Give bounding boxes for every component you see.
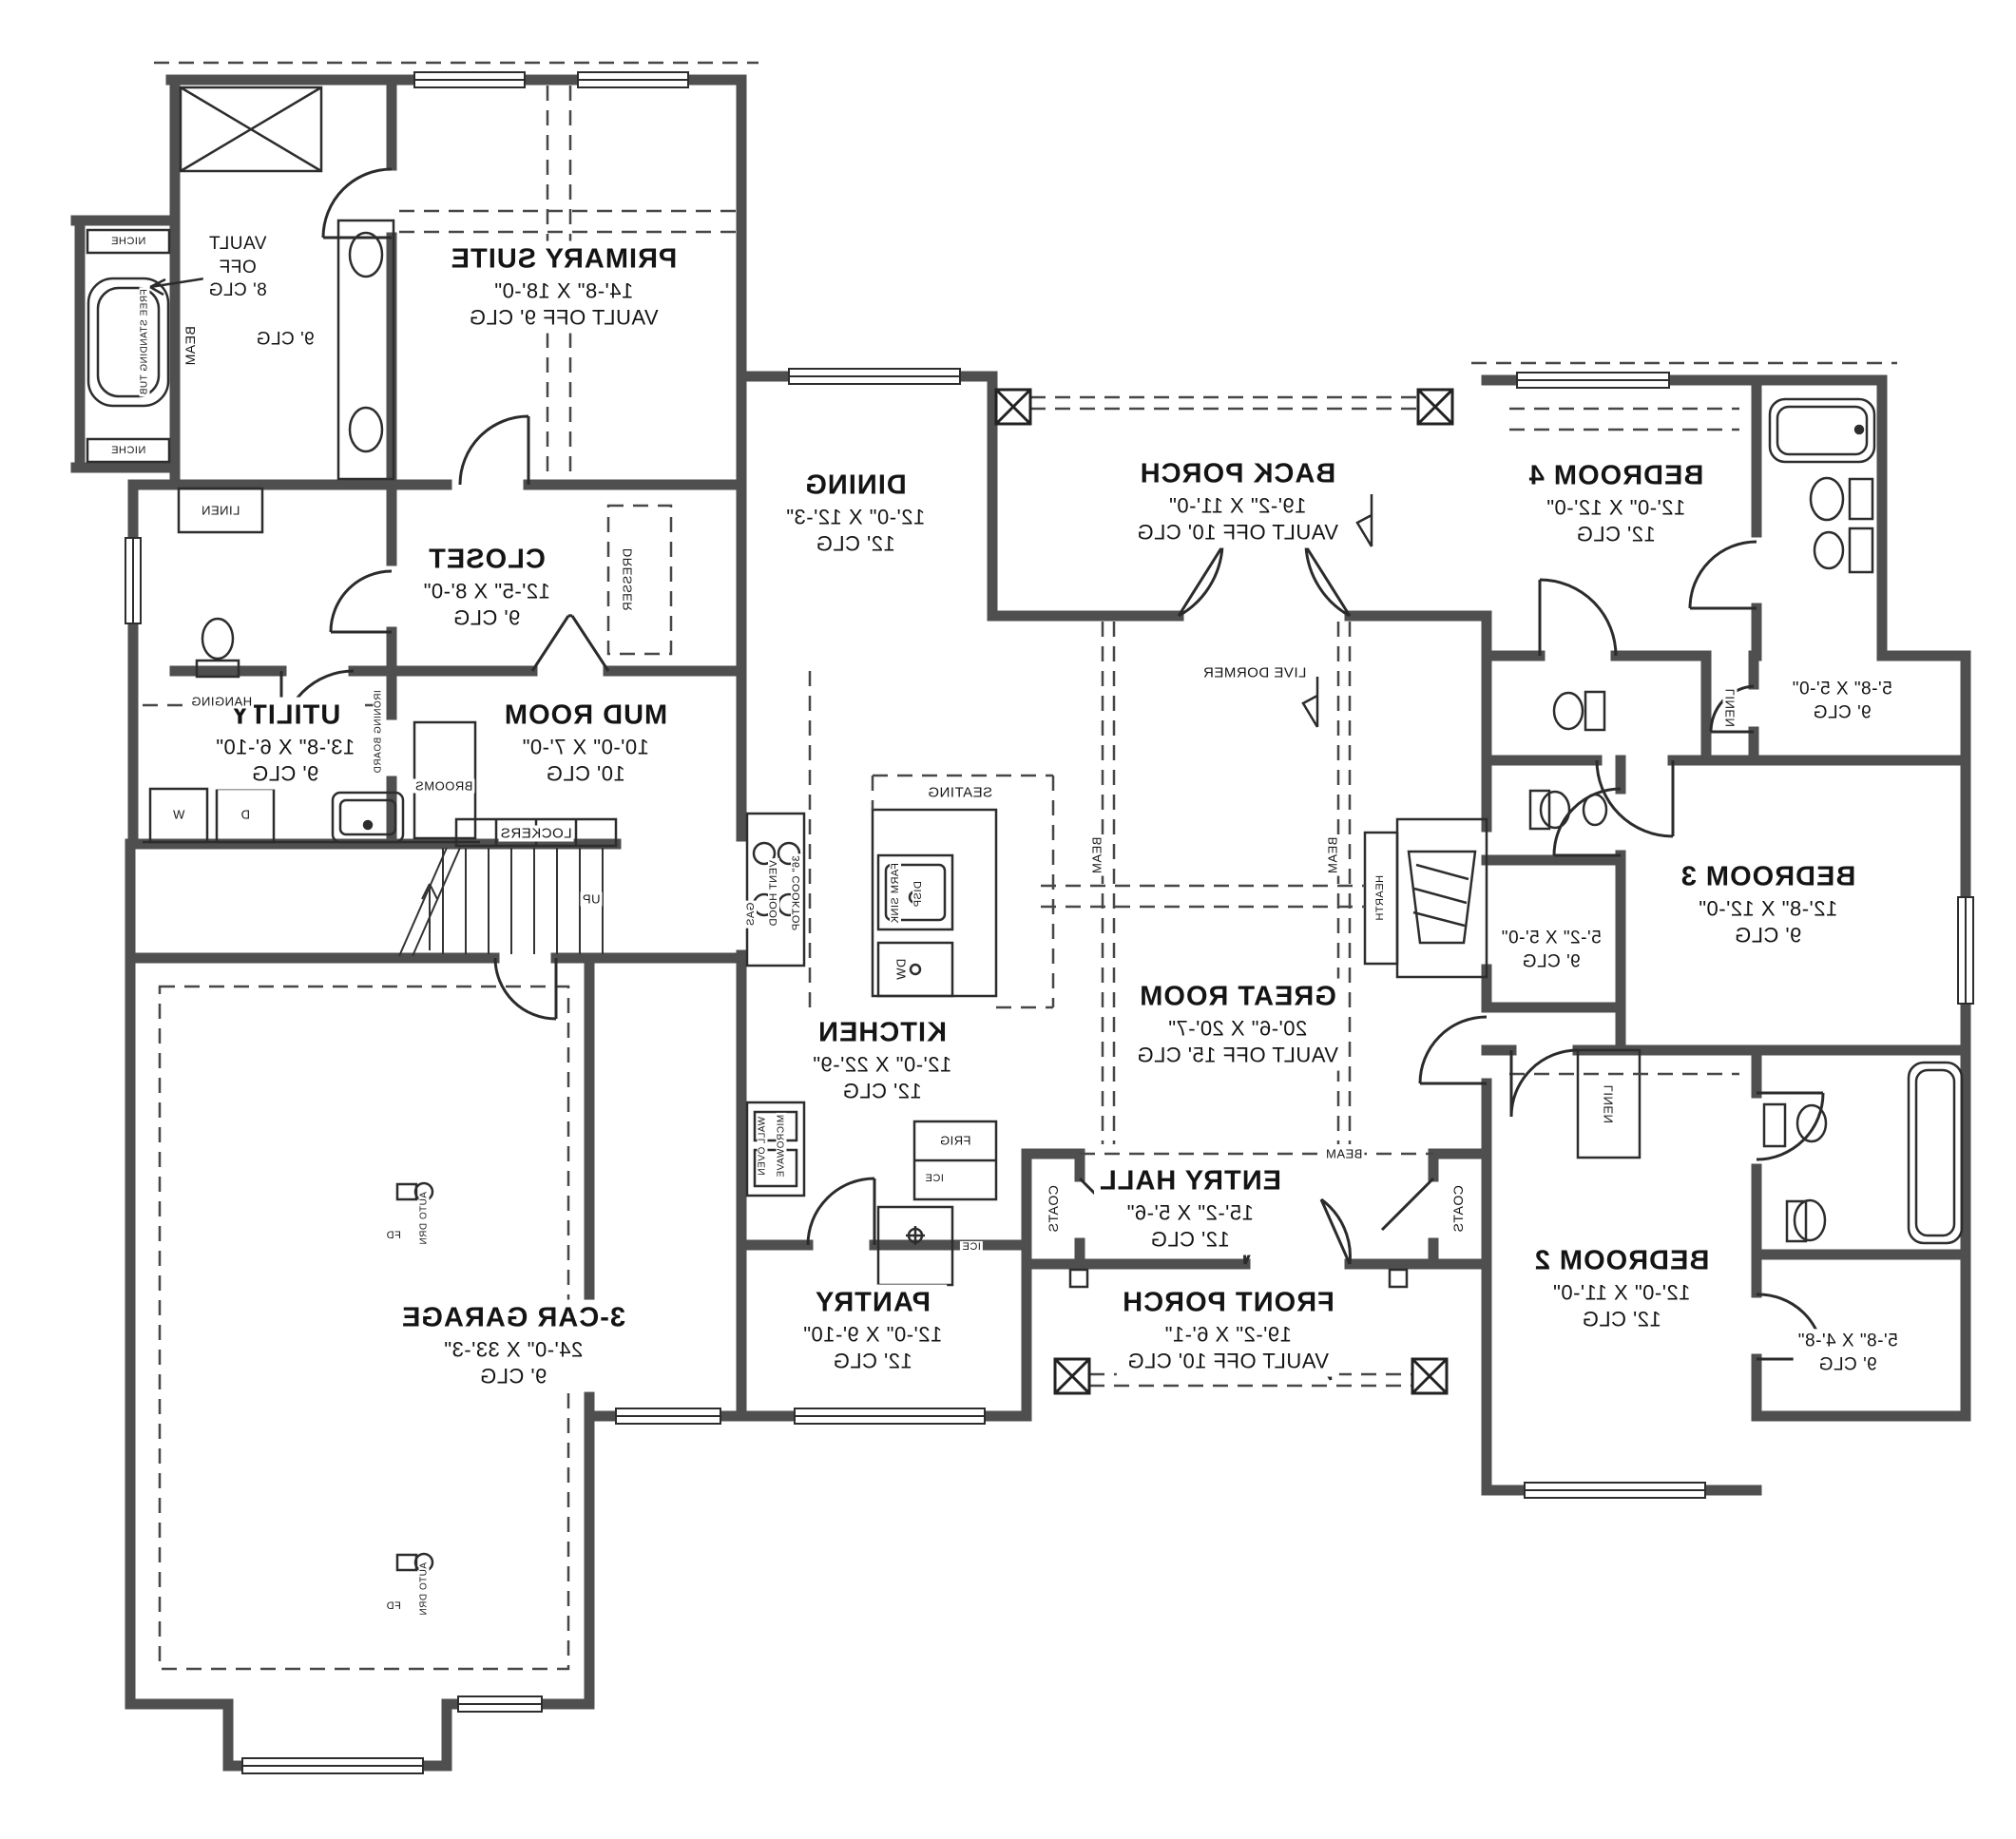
label-beam-great-1: BEAM	[1090, 835, 1104, 876]
label-auto-drain-2: AUTO DRN	[419, 1561, 430, 1618]
label-wall-oven: WALL OVEN	[758, 1115, 768, 1178]
room-label-front-porch: FRONT PORCH 19'-2" X 6'-1" VAULT OFF 10'…	[1117, 1285, 1339, 1377]
floor-plan: PRIMARY SUITE 14'-8" X 18'-0" VAULT OFF …	[0, 0, 2016, 1839]
label-washer: W	[171, 808, 187, 822]
label-36-cooktop: 36" COOKTOP	[791, 853, 802, 933]
room-label-closet: CLOSET 12'-5" X 8'-0" 9' CLG	[418, 542, 555, 634]
room-label-bedroom-2: BEDROOM 2 12'-0" X 11'-0" 12' CLG	[1529, 1243, 1715, 1335]
room-label-dining: DINING 12'-0" X 12'-3" 12' CLG	[781, 468, 930, 560]
label-closet-bed4: 5'-8" X 5'-0" 9' CLG	[1787, 677, 1896, 725]
label-linen-bed2: LINEN	[1602, 1083, 1616, 1126]
label-closet-bed2: 5'-8" X 4'-8" 9' CLG	[1793, 1329, 1902, 1377]
room-label-mud-room: MUD ROOM 10'-0" X 7'-0" 10' CLG	[499, 698, 672, 790]
label-auto-drain-1: AUTO DRN	[419, 1190, 430, 1247]
label-fd-1: FD	[384, 1230, 403, 1241]
room-label-pantry: PANTRY 12'-0" X 9'-10" 12' CLG	[798, 1285, 947, 1377]
label-dw: DW	[894, 957, 909, 983]
room-ceiling: VAULT OFF 9' CLG	[451, 305, 678, 333]
label-beam-entry: BEAM	[1324, 1147, 1365, 1161]
label-dresser: DRESSER	[621, 546, 635, 613]
label-niche-top: NICHE	[109, 236, 148, 247]
room-dims: 14'-8" X 18'-0"	[451, 278, 678, 305]
room-label-utility: UTILITY 13'-8" X 6'-10" 9' CLG	[211, 698, 359, 790]
dashed-lines	[143, 63, 1897, 1669]
stairs	[399, 848, 603, 956]
label-linen: LINEN	[200, 504, 242, 518]
label-beam-left: BEAM	[182, 324, 198, 368]
label-ice-frig: ICE	[923, 1173, 946, 1184]
label-lockers: LOCKERS	[498, 826, 573, 842]
label-disp: DISP	[912, 879, 924, 910]
label-closet-bed3: 5'-2" X 5'-0" 9' CLG	[1496, 926, 1605, 974]
room-label-back-porch: BACK PORCH 19'-2" X 11'-0" VAULT OFF 10'…	[1132, 456, 1343, 548]
label-fd-2: FD	[384, 1600, 403, 1612]
room-label-kitchen: KITCHEN 12'-0" X 22'-9" 12' CLG	[808, 1015, 956, 1107]
label-seating: SEATING	[926, 785, 994, 801]
label-coats-right: COATS	[1450, 1183, 1466, 1235]
label-coats-left: COATS	[1046, 1183, 1061, 1235]
label-9-clg-note: 9' CLG	[251, 328, 319, 354]
label-ironing-board: IRONING BOARD	[374, 688, 384, 776]
label-hearth: HEARTH	[1374, 873, 1386, 923]
room-label-garage: 3-CAR GARAGE 24'-0" X 33'-3" 9' CLG	[396, 1300, 630, 1392]
label-niche-bottom: NICHE	[109, 445, 148, 456]
room-label-primary-suite: PRIMARY SUITE 14'-8" X 18'-0" VAULT OFF …	[446, 241, 682, 334]
label-farm-sink: FARM SINK	[890, 861, 901, 926]
label-hanging: HANGING	[189, 695, 254, 709]
room-label-great-room: GREAT ROOM 20'-6" X 20'-7" VAULT OFF 15'…	[1132, 979, 1343, 1071]
room-label-bedroom-4: BEDROOM 4 12'-0" X 12'-0" 12' CLG	[1524, 458, 1709, 550]
label-ice-cabinet: ICE	[960, 1241, 983, 1253]
label-dryer: D	[239, 808, 252, 822]
label-beam-great-2: BEAM	[1326, 835, 1340, 876]
label-gas: GAS	[745, 901, 757, 929]
label-linen-bed4: LINEN	[1723, 687, 1738, 730]
label-frig: FRIG	[937, 1134, 972, 1148]
label-live-dormer: LIVE DORMER	[1201, 665, 1309, 681]
label-microwave: MICROWAVE	[777, 1113, 787, 1179]
room-name: PRIMARY SUITE	[451, 242, 678, 278]
label-brooms: BROOMS	[413, 779, 475, 794]
label-free-standing-tub: FREE STANDING TUB	[140, 287, 150, 396]
label-vent-hood: VENT HOOD	[768, 858, 779, 929]
label-vault-off-note: VAULT OFF 8' CLG	[203, 232, 272, 304]
label-up: UP	[580, 892, 602, 907]
room-label-entry-hall: ENTRY HALL 15'-2" X 5'-6" 12' CLG	[1094, 1163, 1286, 1255]
room-label-bedroom-3: BEDROOM 3 12'-8" X 12'-0" 9' CLG	[1676, 859, 1861, 951]
